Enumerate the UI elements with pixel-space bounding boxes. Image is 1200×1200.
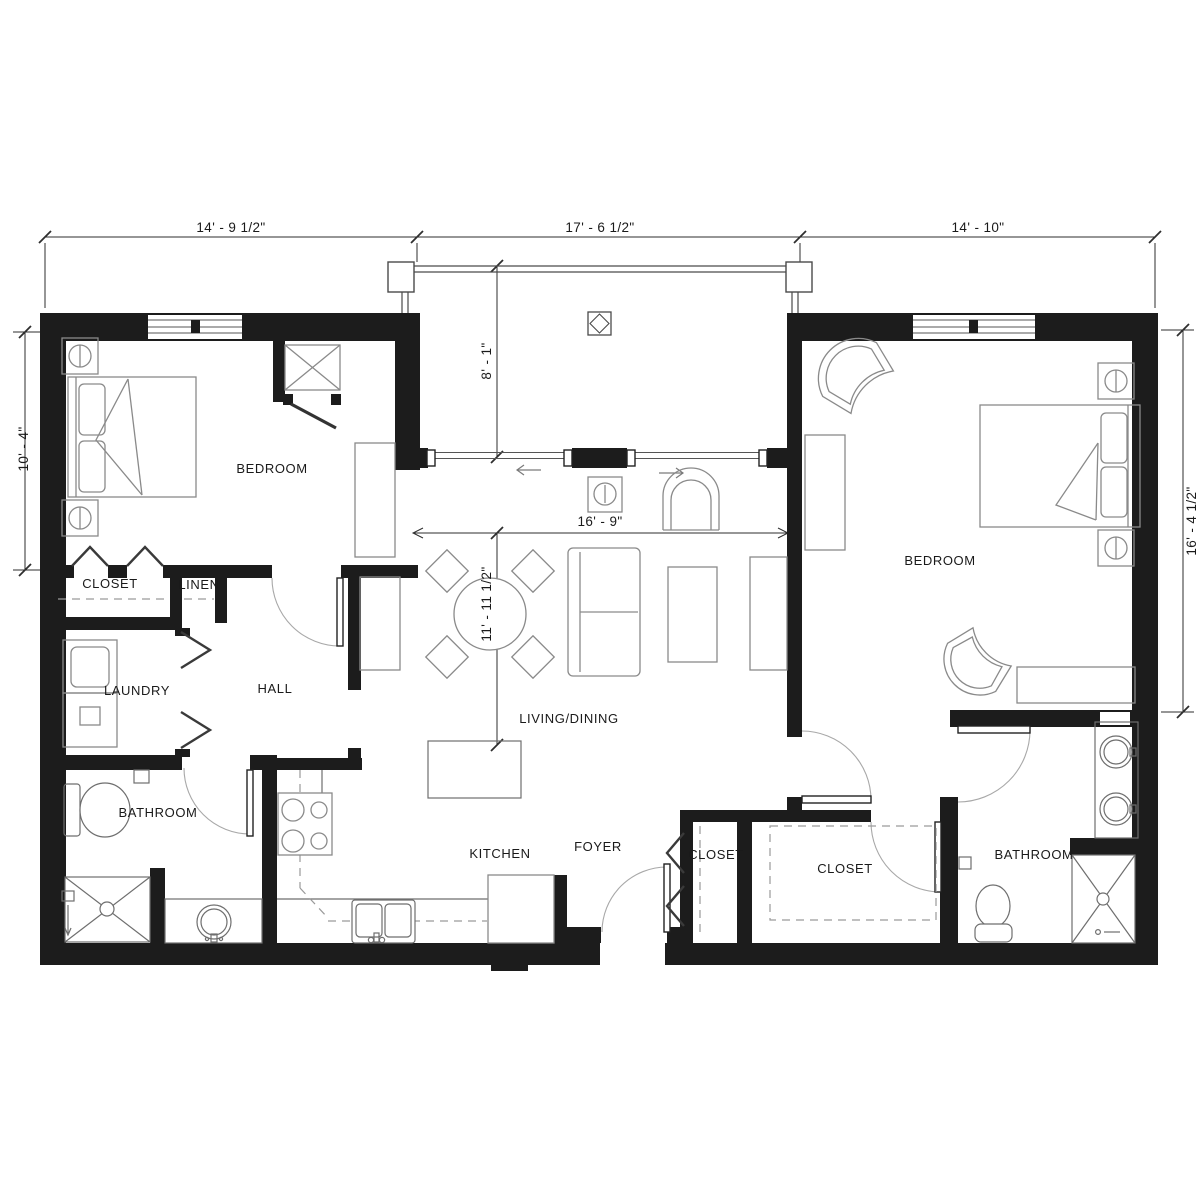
door-closet-alcove <box>291 404 336 428</box>
doors <box>72 404 1030 932</box>
room-label-living-dining: LIVING/DINING <box>519 711 619 726</box>
room-label-linen: LINEN <box>178 577 219 592</box>
bookcase-symbol <box>360 577 400 670</box>
door-entry <box>602 864 670 932</box>
bathroom-wall-niche <box>1100 712 1130 725</box>
dim-right-side: 16' - 4 1/2" <box>1184 486 1199 555</box>
column-symbol <box>588 312 611 335</box>
door-bedroom-right <box>802 731 871 803</box>
dim-balcony-depth: 8' - 1" <box>479 342 494 379</box>
windows <box>148 315 1130 725</box>
slide-arrow-left <box>517 465 541 475</box>
dresser-symbol <box>805 435 845 550</box>
shower-symbol <box>62 877 150 942</box>
room-label-hall: HALL <box>258 681 293 696</box>
wardrobe-shelf-symbol <box>285 345 340 390</box>
room-label-bedroom-right: BEDROOM <box>904 553 975 568</box>
room-label-closet-foyer: CLOSET <box>688 847 744 862</box>
tp-holder <box>959 857 971 869</box>
dim-top-right: 14' - 10" <box>952 220 1005 235</box>
armchair-symbol <box>663 468 719 530</box>
coffee-table-symbol <box>668 567 717 662</box>
room-label-foyer: FOYER <box>574 839 622 854</box>
balcony-post-right <box>786 262 812 292</box>
nightstand-symbol <box>1098 363 1134 399</box>
tv-console-symbol <box>750 557 787 670</box>
kitchen-sink-symbol <box>352 900 415 943</box>
room-label-bathroom-right: BATHROOM <box>995 847 1074 862</box>
kitchen-island-symbol <box>428 741 521 798</box>
balcony-post-left <box>388 262 414 292</box>
room-label-closet-left: CLOSET <box>82 576 138 591</box>
fan-chair-symbol <box>930 623 1016 709</box>
bifold-closet-left <box>72 547 163 566</box>
sofa-symbol <box>568 548 640 676</box>
refrigerator-symbol <box>488 875 554 943</box>
dim-left-side: 10' - 4" <box>16 426 31 471</box>
door-bedroom-left <box>272 578 343 646</box>
walls <box>40 313 1158 971</box>
window-bedroom-right <box>913 315 1035 339</box>
room-label-bathroom-left: BATHROOM <box>119 805 198 820</box>
floor-plan-canvas: 14' - 9 1/2" 17' - 6 1/2" 14' - 10" 10' … <box>0 0 1200 1200</box>
door-bathroom-right <box>958 726 1030 802</box>
window-bedroom-left <box>148 315 242 339</box>
room-label-laundry: LAUNDRY <box>104 683 170 698</box>
side-table-lamp-symbol <box>588 477 622 512</box>
bed-symbol <box>980 405 1140 527</box>
shower-symbol <box>1072 855 1135 943</box>
stove-symbol <box>278 793 332 855</box>
dim-living-width: 16' - 9" <box>577 514 622 529</box>
bifold-laundry <box>181 632 210 748</box>
vanity-sink-symbol <box>165 899 262 943</box>
door-closet-walkin <box>871 822 941 892</box>
dim-top-left: 14' - 9 1/2" <box>196 220 265 235</box>
room-label-bedroom-left: BEDROOM <box>236 461 307 476</box>
door-bathroom-left <box>184 768 253 836</box>
balcony <box>388 262 812 478</box>
nightstand-symbol <box>62 338 98 374</box>
vanity-double-sink-symbol <box>1095 722 1138 838</box>
long-dresser-symbol <box>1017 667 1135 703</box>
bed-symbol <box>68 377 196 497</box>
dryer-symbol <box>63 693 117 747</box>
dim-top-center: 17' - 6 1/2" <box>565 220 634 235</box>
dim-living-depth: 11' - 11 1/2" <box>479 566 494 641</box>
nightstand-symbol <box>1098 530 1134 566</box>
room-label-kitchen: KITCHEN <box>469 846 530 861</box>
room-label-closet-walkin: CLOSET <box>817 861 873 876</box>
tp-holder <box>134 770 149 783</box>
nightstand-symbol <box>62 500 98 536</box>
toilet-symbol <box>975 885 1012 942</box>
dresser-symbol <box>355 443 395 557</box>
floor-plan-page: 14' - 9 1/2" 17' - 6 1/2" 14' - 10" 10' … <box>0 0 1200 1200</box>
